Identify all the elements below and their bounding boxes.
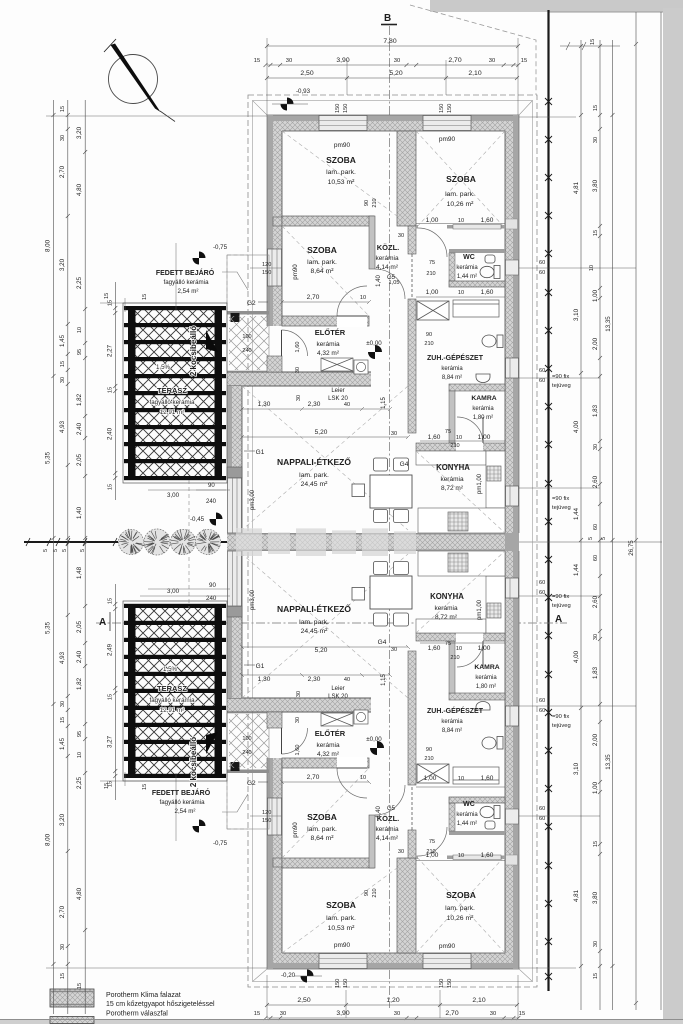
svg-text:15: 15 <box>593 105 599 111</box>
svg-text:15: 15 <box>77 983 83 989</box>
svg-text:kerámia: kerámia <box>472 406 494 412</box>
svg-text:3,80: 3,80 <box>592 891 599 904</box>
svg-text:90: 90 <box>364 890 370 896</box>
svg-text:FEDETT BEJÁRÓ: FEDETT BEJÁRÓ <box>152 788 211 797</box>
svg-text:5: 5 <box>588 537 594 540</box>
svg-text:5: 5 <box>601 537 607 540</box>
svg-text:10: 10 <box>456 435 462 441</box>
svg-text:lam. park.: lam. park. <box>299 619 329 626</box>
svg-text:Leier: Leier <box>331 388 344 394</box>
svg-text:5,20: 5,20 <box>389 70 402 77</box>
svg-text:2,25: 2,25 <box>76 276 83 289</box>
svg-text:2,40: 2,40 <box>76 650 83 663</box>
svg-text:2,30: 2,30 <box>308 676 321 683</box>
svg-text:pm1,00: pm1,00 <box>477 599 483 620</box>
svg-text:3,80: 3,80 <box>592 179 599 192</box>
svg-text:5,20: 5,20 <box>315 647 328 654</box>
svg-text:4,00: 4,00 <box>573 420 580 433</box>
svg-text:kerámia: kerámia <box>440 476 464 483</box>
svg-text:40: 40 <box>344 402 350 408</box>
svg-text:1,44 m²: 1,44 m² <box>457 274 477 280</box>
svg-text:7,80: 7,80 <box>383 38 396 45</box>
svg-text:30: 30 <box>394 58 400 64</box>
svg-text:G2: G2 <box>247 780 256 787</box>
svg-text:240: 240 <box>242 348 251 354</box>
svg-text:10: 10 <box>458 776 464 782</box>
svg-text:A: A <box>555 614 562 625</box>
svg-text:pm90: pm90 <box>292 264 299 280</box>
svg-text:10: 10 <box>77 327 83 333</box>
svg-text:4,81: 4,81 <box>573 181 580 194</box>
svg-text:SZOBA: SZOBA <box>326 155 356 165</box>
svg-text:1,00: 1,00 <box>426 852 439 859</box>
svg-text:1,45: 1,45 <box>59 334 66 347</box>
svg-text:-0,93: -0,93 <box>296 88 311 95</box>
svg-text:15 cm kőzetgyapot hőszigetelés: 15 cm kőzetgyapot hőszigeteléssel <box>106 1001 215 1008</box>
svg-text:15: 15 <box>254 1011 260 1017</box>
svg-text:2,70: 2,70 <box>59 165 66 178</box>
svg-text:210: 210 <box>450 655 459 661</box>
svg-text:2,05: 2,05 <box>76 453 83 466</box>
svg-text:5: 5 <box>43 549 49 552</box>
svg-text:8,84 m²: 8,84 m² <box>442 728 462 734</box>
svg-text:kerámia: kerámia <box>441 366 463 372</box>
svg-text:SZOBA: SZOBA <box>307 812 337 822</box>
svg-text:1,44: 1,44 <box>573 563 580 576</box>
svg-text:2,54 m²: 2,54 m² <box>178 288 199 295</box>
svg-text:lam. park.: lam. park. <box>307 259 337 266</box>
svg-text:kerámia: kerámia <box>316 742 340 749</box>
svg-text:Leier: Leier <box>331 686 344 692</box>
svg-text:pm90: pm90 <box>439 943 456 950</box>
svg-text:KAMRA: KAMRA <box>471 395 496 402</box>
svg-text:8,00: 8,00 <box>45 239 52 252</box>
svg-text:SZOBA: SZOBA <box>307 245 337 255</box>
svg-text:1,60: 1,60 <box>428 434 441 441</box>
svg-text:30: 30 <box>280 1011 286 1017</box>
svg-text:120: 120 <box>262 262 271 268</box>
svg-text:75: 75 <box>445 641 451 647</box>
svg-text:=90 fix: =90 fix <box>552 594 569 600</box>
svg-text:3,90: 3,90 <box>336 1010 349 1017</box>
svg-text:10: 10 <box>77 752 83 758</box>
svg-text:1,60: 1,60 <box>481 775 494 782</box>
svg-text:60: 60 <box>539 368 545 374</box>
svg-text:30: 30 <box>60 701 66 707</box>
svg-text:4,32 m²: 4,32 m² <box>317 751 340 758</box>
svg-text:4,80: 4,80 <box>76 183 83 196</box>
svg-text:90: 90 <box>426 332 432 338</box>
svg-text:10,26 m²: 10,26 m² <box>447 915 475 922</box>
svg-text:4,80: 4,80 <box>76 887 83 900</box>
svg-text:G4: G4 <box>378 639 387 646</box>
svg-text:NAPPALI-ÉTKEZŐ: NAPPALI-ÉTKEZŐ <box>277 603 351 614</box>
svg-text:12,91 m²: 12,91 m² <box>160 409 184 416</box>
svg-text:1,15: 1,15 <box>381 397 387 409</box>
svg-text:30: 30 <box>593 634 599 640</box>
svg-text:10: 10 <box>456 646 462 652</box>
svg-text:30: 30 <box>295 717 301 723</box>
svg-text:1,83: 1,83 <box>592 666 599 679</box>
svg-text:kerámia: kerámia <box>456 265 478 271</box>
svg-text:5: 5 <box>62 549 68 552</box>
svg-text:1,44 m²: 1,44 m² <box>457 821 477 827</box>
svg-text:1,40: 1,40 <box>376 806 382 818</box>
svg-text:tejüveg: tejüveg <box>552 505 571 511</box>
svg-text:1,5%: 1,5% <box>163 666 178 673</box>
svg-text:ZUH.-GÉPÉSZET: ZUH.-GÉPÉSZET <box>427 353 484 362</box>
svg-text:30: 30 <box>286 58 292 64</box>
svg-text:75: 75 <box>445 429 451 435</box>
svg-text:NAPPALI-ÉTKEZŐ: NAPPALI-ÉTKEZŐ <box>277 456 351 467</box>
svg-text:WC: WC <box>463 801 475 808</box>
svg-text:95: 95 <box>77 731 83 737</box>
svg-text:150: 150 <box>262 270 271 276</box>
svg-text:G1: G1 <box>256 449 265 456</box>
svg-text:15: 15 <box>104 293 110 299</box>
svg-text:G2: G2 <box>247 300 256 307</box>
svg-text:30: 30 <box>398 233 404 239</box>
svg-text:30: 30 <box>60 135 66 141</box>
svg-text:60: 60 <box>539 806 545 812</box>
svg-text:3,20: 3,20 <box>59 813 66 826</box>
svg-text:30: 30 <box>60 377 66 383</box>
svg-text:75: 75 <box>429 839 435 845</box>
svg-text:5,35: 5,35 <box>45 451 52 464</box>
svg-text:95: 95 <box>77 349 83 355</box>
svg-text:ELŐTÉR: ELŐTÉR <box>315 729 346 738</box>
svg-text:30: 30 <box>296 691 302 697</box>
svg-text:3,00: 3,00 <box>167 492 180 499</box>
svg-text:12,91 m²: 12,91 m² <box>160 707 184 714</box>
svg-text:-0,20: -0,20 <box>281 972 296 979</box>
svg-text:8,00: 8,00 <box>45 833 52 846</box>
svg-text:210: 210 <box>372 198 378 207</box>
svg-text:3,10: 3,10 <box>573 762 580 775</box>
svg-text:8,64 m²: 8,64 m² <box>310 268 334 275</box>
svg-text:150: 150 <box>335 979 341 988</box>
svg-text:kerámia: kerámia <box>375 826 399 833</box>
svg-text:TERASZ: TERASZ <box>157 684 187 693</box>
svg-text:60: 60 <box>539 708 545 714</box>
svg-text:1,60: 1,60 <box>295 745 301 756</box>
svg-text:4,14 m²: 4,14 m² <box>376 835 399 842</box>
svg-text:10,53 m²: 10,53 m² <box>328 925 356 932</box>
svg-text:kerámia: kerámia <box>316 341 340 348</box>
svg-text:2,30: 2,30 <box>308 401 321 408</box>
svg-text:8,72 m²: 8,72 m² <box>441 485 464 492</box>
svg-text:TERASZ: TERASZ <box>157 386 187 395</box>
svg-text:30: 30 <box>593 444 599 450</box>
svg-text:2,50: 2,50 <box>300 70 313 77</box>
svg-text:60: 60 <box>539 698 545 704</box>
svg-text:150: 150 <box>447 979 453 988</box>
svg-text:G4: G4 <box>400 461 409 468</box>
svg-text:ELŐTÉR: ELŐTÉR <box>315 328 346 337</box>
svg-text:fagyálló kerámia: fagyálló kerámia <box>159 799 205 806</box>
svg-text:13,35: 13,35 <box>605 754 612 770</box>
svg-text:60: 60 <box>539 580 545 586</box>
svg-text:60: 60 <box>539 270 545 276</box>
svg-text:ZUH.-GÉPÉSZET: ZUH.-GÉPÉSZET <box>427 706 484 715</box>
svg-text:2,00: 2,00 <box>592 733 599 746</box>
svg-text:60: 60 <box>539 590 545 596</box>
svg-text:3,90: 3,90 <box>336 57 349 64</box>
svg-text:13,35: 13,35 <box>605 316 612 332</box>
svg-text:75: 75 <box>429 260 435 266</box>
svg-text:4,81: 4,81 <box>573 889 580 902</box>
svg-text:4,93: 4,93 <box>59 420 66 433</box>
svg-text:10: 10 <box>458 290 464 296</box>
svg-text:2,25: 2,25 <box>76 776 83 789</box>
svg-text:5,35: 5,35 <box>45 621 52 634</box>
svg-text:pm3,00: pm3,00 <box>250 589 256 610</box>
svg-text:2 kocsibeálló: 2 kocsibeálló <box>189 737 198 787</box>
svg-text:1,00: 1,00 <box>478 434 491 441</box>
svg-text:30: 30 <box>394 1011 400 1017</box>
svg-text:±0,00: ±0,00 <box>366 340 382 347</box>
svg-text:15: 15 <box>60 717 66 723</box>
svg-text:1,30: 1,30 <box>258 401 271 408</box>
svg-text:KAMRA: KAMRA <box>474 664 499 671</box>
svg-text:30: 30 <box>391 431 397 437</box>
svg-text:lam. park.: lam. park. <box>326 169 356 176</box>
svg-text:15: 15 <box>108 781 114 787</box>
svg-text:26,75: 26,75 <box>628 540 635 556</box>
svg-text:30: 30 <box>593 137 599 143</box>
svg-text:tejüveg: tejüveg <box>552 603 571 609</box>
svg-text:1,20: 1,20 <box>386 997 399 1004</box>
svg-text:Porotherm válaszfal: Porotherm válaszfal <box>106 1011 168 1018</box>
svg-text:30: 30 <box>398 849 404 855</box>
svg-text:kerámia: kerámia <box>441 719 463 725</box>
svg-text:210: 210 <box>372 888 378 897</box>
svg-text:1,5%: 1,5% <box>156 364 171 371</box>
svg-text:1,80 m²: 1,80 m² <box>473 415 493 421</box>
svg-text:2,40: 2,40 <box>76 422 83 435</box>
svg-text:lam. park.: lam. park. <box>326 915 356 922</box>
svg-text:pm1,00: pm1,00 <box>477 473 483 494</box>
svg-text:lam. park.: lam. park. <box>445 905 475 912</box>
svg-text:kerámia: kerámia <box>434 605 458 612</box>
svg-text:30: 30 <box>60 944 66 950</box>
svg-text:1,82: 1,82 <box>76 677 83 690</box>
svg-text:G1: G1 <box>256 663 265 670</box>
svg-text:90: 90 <box>208 483 215 489</box>
svg-text:30: 30 <box>391 647 397 653</box>
svg-text:2,40: 2,40 <box>107 427 114 440</box>
svg-text:2,00: 2,00 <box>592 337 599 350</box>
svg-text:2,27: 2,27 <box>107 344 114 357</box>
svg-text:A: A <box>99 617 106 628</box>
svg-text:15: 15 <box>60 106 66 112</box>
svg-text:60: 60 <box>593 524 599 530</box>
svg-text:15: 15 <box>108 484 114 490</box>
svg-text:15: 15 <box>108 387 114 393</box>
svg-text:1,00: 1,00 <box>592 781 599 794</box>
svg-text:G5: G5 <box>387 806 396 812</box>
svg-text:1,00: 1,00 <box>592 289 599 302</box>
svg-text:150: 150 <box>439 104 445 113</box>
svg-text:120: 120 <box>262 810 271 816</box>
svg-text:Porotherm Klima falazat: Porotherm Klima falazat <box>106 992 181 999</box>
svg-text:8,84 m²: 8,84 m² <box>442 375 462 381</box>
svg-text:30: 30 <box>295 367 301 373</box>
svg-text:15: 15 <box>254 58 260 64</box>
svg-text:8,64 m²: 8,64 m² <box>310 835 334 842</box>
svg-text:SZOBA: SZOBA <box>326 900 356 910</box>
svg-text:3,27: 3,27 <box>107 735 114 748</box>
svg-text:2,70: 2,70 <box>448 57 461 64</box>
svg-text:2,10: 2,10 <box>468 70 481 77</box>
svg-text:-0,75: -0,75 <box>213 840 228 847</box>
svg-text:tejüveg: tejüveg <box>552 723 571 729</box>
svg-text:90: 90 <box>209 582 216 589</box>
svg-text:1,82: 1,82 <box>76 393 83 406</box>
svg-text:lam. park.: lam. park. <box>445 191 475 198</box>
svg-text:1,30: 1,30 <box>258 676 271 683</box>
svg-text:lam. park.: lam. park. <box>307 826 337 833</box>
svg-text:150: 150 <box>262 818 271 824</box>
svg-text:SZOBA: SZOBA <box>446 890 476 900</box>
svg-text:2,60: 2,60 <box>592 475 599 488</box>
svg-text:4,32 m²: 4,32 m² <box>317 350 340 357</box>
svg-text:tejüveg: tejüveg <box>552 383 571 389</box>
svg-text:60: 60 <box>539 260 545 266</box>
svg-text:2,54 m²: 2,54 m² <box>175 808 196 815</box>
svg-text:1,00: 1,00 <box>424 775 437 782</box>
svg-text:15: 15 <box>108 694 114 700</box>
svg-text:15: 15 <box>593 230 599 236</box>
svg-text:90: 90 <box>364 200 370 206</box>
svg-text:pm3,00: pm3,00 <box>250 489 256 510</box>
svg-text:10: 10 <box>458 218 464 224</box>
svg-text:=90 fix: =90 fix <box>552 496 569 502</box>
svg-text:1,40: 1,40 <box>376 275 382 287</box>
svg-text:1,00: 1,00 <box>478 645 491 652</box>
svg-text:FEDETT BEJÁRÓ: FEDETT BEJÁRÓ <box>156 268 215 277</box>
svg-text:LSK 20: LSK 20 <box>328 694 348 700</box>
svg-text:pm90: pm90 <box>334 942 351 949</box>
svg-text:1,60: 1,60 <box>481 217 494 224</box>
svg-text:-0,45: -0,45 <box>190 516 205 523</box>
svg-text:30: 30 <box>489 58 495 64</box>
svg-text:15: 15 <box>60 973 66 979</box>
svg-text:2,05: 2,05 <box>76 620 83 633</box>
svg-text:KONYHA: KONYHA <box>436 463 470 472</box>
svg-text:10: 10 <box>360 295 366 301</box>
svg-text:KONYHA: KONYHA <box>430 592 464 601</box>
svg-text:kerámia: kerámia <box>475 675 497 681</box>
svg-text:1,48: 1,48 <box>76 566 83 579</box>
svg-text:2,60: 2,60 <box>592 595 599 608</box>
svg-text:pm90: pm90 <box>334 142 351 149</box>
svg-text:15: 15 <box>519 1011 525 1017</box>
svg-text:1,44: 1,44 <box>573 507 580 520</box>
svg-text:fagyálló kerámia: fagyálló kerámia <box>149 399 195 406</box>
svg-text:210: 210 <box>424 756 433 762</box>
svg-text:fagyálló kerámia: fagyálló kerámia <box>149 697 195 704</box>
svg-text:1,00: 1,00 <box>426 217 439 224</box>
svg-text:24,45 m²: 24,45 m² <box>301 628 329 635</box>
svg-text:60: 60 <box>539 378 545 384</box>
svg-text:1,45: 1,45 <box>59 737 66 750</box>
svg-text:=90 fix: =90 fix <box>552 374 569 380</box>
svg-text:1,60: 1,60 <box>295 342 301 353</box>
svg-text:240: 240 <box>242 750 251 756</box>
svg-text:4,00: 4,00 <box>573 650 580 663</box>
svg-text:24,45 m²: 24,45 m² <box>301 481 329 488</box>
svg-text:10: 10 <box>589 265 595 271</box>
svg-text:15: 15 <box>593 973 599 979</box>
svg-text:4,93: 4,93 <box>59 651 66 664</box>
svg-text:3,20: 3,20 <box>59 258 66 271</box>
svg-text:2,70: 2,70 <box>307 294 320 301</box>
svg-text:10,26 m²: 10,26 m² <box>447 201 475 208</box>
svg-text:WC: WC <box>463 254 475 261</box>
svg-text:LSK 20: LSK 20 <box>328 396 348 402</box>
svg-text:1,80 m²: 1,80 m² <box>476 684 496 690</box>
svg-text:1,15: 1,15 <box>381 674 387 686</box>
svg-text:1,60: 1,60 <box>481 289 494 296</box>
svg-text:15: 15 <box>142 784 148 790</box>
svg-text:150: 150 <box>343 104 349 113</box>
svg-text:100: 100 <box>242 736 251 742</box>
svg-text:G5: G5 <box>387 275 396 281</box>
svg-text:=90 fix: =90 fix <box>552 714 569 720</box>
svg-text:5: 5 <box>53 549 59 552</box>
svg-text:2,70: 2,70 <box>59 905 66 918</box>
svg-text:3,10: 3,10 <box>573 308 580 321</box>
svg-text:2 kocsibeálló: 2 kocsibeálló <box>189 326 198 376</box>
svg-text:30: 30 <box>490 1011 496 1017</box>
svg-text:30: 30 <box>593 941 599 947</box>
svg-text:15: 15 <box>142 294 148 300</box>
svg-text:2,70: 2,70 <box>307 774 320 781</box>
svg-text:2,49: 2,49 <box>107 643 114 656</box>
svg-text:4,14 m²: 4,14 m² <box>376 264 399 271</box>
svg-text:1,00: 1,00 <box>426 289 439 296</box>
svg-text:15: 15 <box>521 58 527 64</box>
svg-text:2,70: 2,70 <box>445 1010 458 1017</box>
svg-text:1,40: 1,40 <box>76 506 83 519</box>
svg-text:1,60: 1,60 <box>481 852 494 859</box>
svg-text:5,20: 5,20 <box>315 429 328 436</box>
svg-text:210: 210 <box>424 341 433 347</box>
svg-text:15: 15 <box>590 39 596 45</box>
svg-text:40: 40 <box>344 677 350 683</box>
svg-text:210: 210 <box>450 443 459 449</box>
svg-text:3,20: 3,20 <box>76 126 83 139</box>
svg-text:2,10: 2,10 <box>472 997 485 1004</box>
svg-text:210: 210 <box>426 271 435 277</box>
svg-text:30: 30 <box>296 395 302 401</box>
svg-text:lam. park.: lam. park. <box>299 472 329 479</box>
svg-text:pm90: pm90 <box>439 136 456 143</box>
svg-text:B: B <box>384 13 391 24</box>
svg-text:15: 15 <box>593 841 599 847</box>
svg-text:2,50: 2,50 <box>297 997 310 1004</box>
svg-text:-0,75: -0,75 <box>213 244 228 251</box>
svg-text:fagyálló kerámia: fagyálló kerámia <box>163 279 209 286</box>
svg-text:SZOBA: SZOBA <box>446 174 476 184</box>
svg-text:1,83: 1,83 <box>592 404 599 417</box>
svg-text:15: 15 <box>60 361 66 367</box>
svg-text:150: 150 <box>343 979 349 988</box>
svg-text:150: 150 <box>335 104 341 113</box>
svg-text:60: 60 <box>539 816 545 822</box>
svg-text:KÖZL.: KÖZL. <box>377 243 400 252</box>
